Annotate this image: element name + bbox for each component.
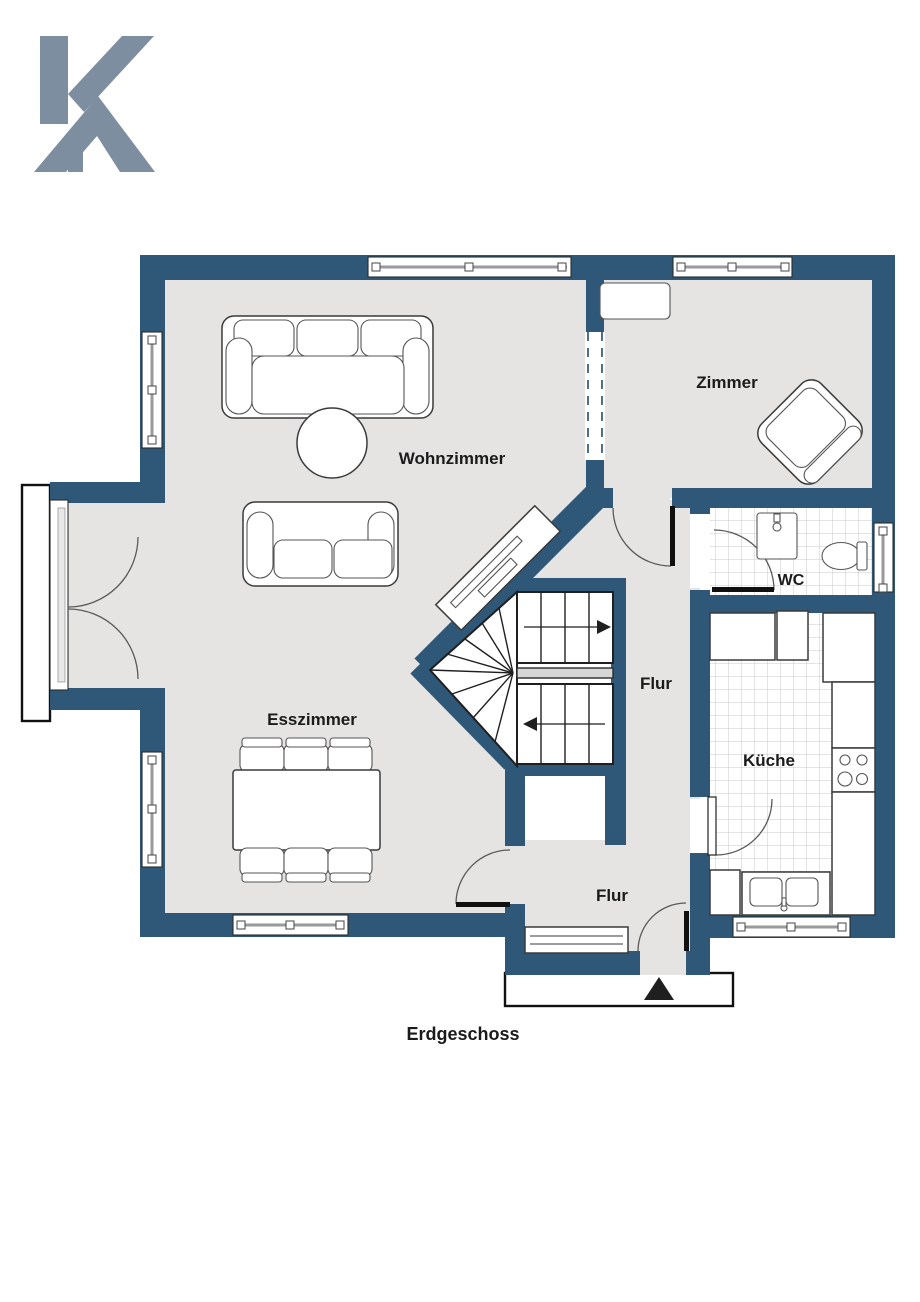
kitchen-sink-icon [742,872,830,915]
wc-sink-icon [757,513,797,559]
dining-set-icon [233,738,380,882]
floorplan-page: Wohnzimmer Zimmer WC Flur Küche Esszimme… [0,0,920,1302]
understairs-niche [523,776,605,840]
window-top-zimmer [673,257,792,277]
kueche-label: Küche [743,751,795,770]
wohnzimmer-label: Wohnzimmer [399,449,506,468]
sofa-3seat-icon [222,316,433,418]
wc-label: WC [778,572,805,589]
stove-icon [832,748,875,792]
company-logo-icon [34,36,155,172]
entrance-platform [505,973,733,1006]
round-table-icon [297,408,367,478]
toilet-icon [822,542,867,570]
window-top-wohnzimmer [368,257,571,277]
hall-sideboard-icon [525,927,628,953]
window-bottom-kueche [733,917,850,937]
virtual-wall-dashed [585,332,605,460]
terrace-platform [22,485,50,721]
flur-lower-label: Flur [596,886,628,905]
window-right-wc [874,523,893,592]
dining-chairs-top [240,738,372,772]
floor-caption: Erdgeschoss [406,1024,519,1044]
floorplan-drawing: Wohnzimmer Zimmer WC Flur Küche Esszimme… [0,0,920,1302]
window-bottom-esszimmer [233,915,348,935]
stairs-handrail [517,668,613,678]
dining-table-icon [233,770,380,850]
dining-chairs-bottom [240,848,372,882]
flur-upper-label: Flur [640,674,672,693]
esszimmer-label: Esszimmer [267,710,357,729]
window-left-esszimmer [142,752,162,867]
door-alcove-floor [60,500,165,690]
zimmer-cabinet-icon [600,283,670,319]
window-left-wohnzimmer [142,332,162,448]
zimmer-label: Zimmer [696,373,758,392]
sofa-2seat-icon [243,502,398,586]
